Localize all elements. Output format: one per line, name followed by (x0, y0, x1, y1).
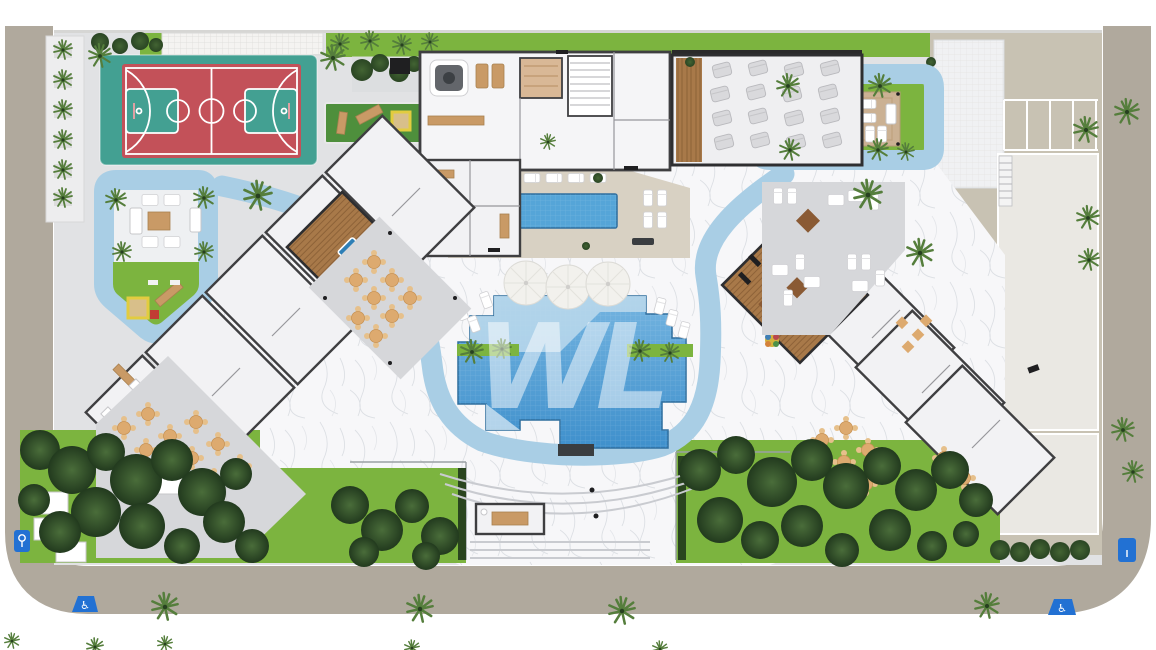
spa-lounger (492, 64, 504, 88)
cinema-room (672, 55, 862, 165)
sandbox (128, 298, 148, 318)
roof-tile-grid (934, 40, 1004, 188)
handicap-icon: ♿ (1057, 602, 1067, 615)
hedge-row-southeast (990, 539, 1090, 562)
spa-cabinet (886, 104, 896, 124)
coffee-table (148, 212, 170, 230)
deck-bench (632, 238, 654, 245)
roof-stairs (999, 156, 1012, 206)
sauna (520, 58, 562, 98)
developer-logo-watermark: WL (475, 298, 662, 436)
spa-lounger (476, 64, 488, 88)
pavilion-table (492, 512, 528, 525)
siteplan-canvas: ♿ ♿ WL (0, 0, 1156, 650)
handicap-icon: ♿ (80, 599, 90, 612)
pool-grate (558, 444, 594, 456)
north-planter (351, 54, 422, 92)
lap-pool-tiles (519, 194, 617, 228)
cinema-plant (685, 57, 695, 67)
entrance-pavilion (476, 504, 544, 534)
roof-panel-upper (998, 154, 1098, 430)
pergola-grid (162, 33, 323, 55)
stairwell (568, 56, 612, 116)
indoor-hot-tub (430, 60, 468, 96)
deck-plant (593, 173, 603, 183)
cinema-wood-floor (676, 58, 702, 162)
locker-bench (500, 214, 509, 238)
siteplan-rendering: ♿ ♿ WL (0, 0, 1156, 650)
lounge-cabinet (190, 208, 201, 232)
north-building (420, 50, 862, 170)
wayfinding-sign-east (1118, 538, 1136, 562)
planter-monolith (390, 58, 410, 74)
spa-shelf (428, 116, 484, 125)
lounge-chair (130, 208, 142, 234)
wayfinding-sign-west (14, 530, 30, 552)
play-cube (150, 310, 159, 319)
basketball-court (100, 55, 317, 165)
deck-plant (582, 242, 590, 250)
